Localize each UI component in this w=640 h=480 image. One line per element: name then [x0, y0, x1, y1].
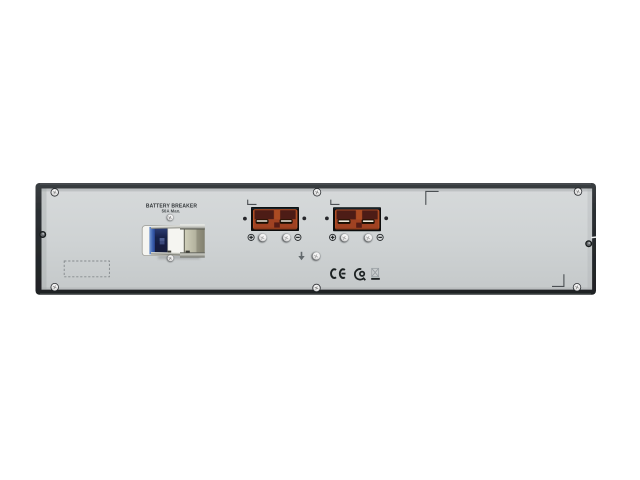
svg-text:50A Max.: 50A Max.: [162, 208, 181, 213]
